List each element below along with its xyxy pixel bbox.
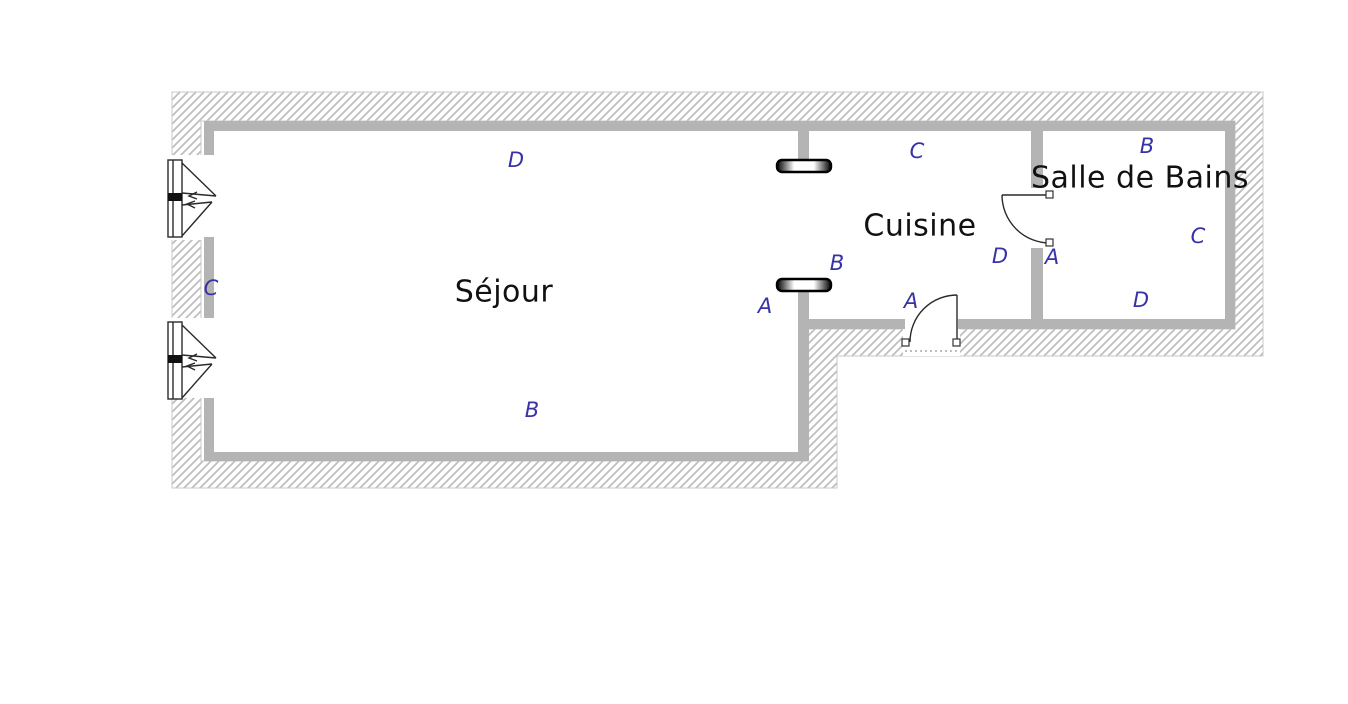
room-label-cuisine: Cuisine — [863, 209, 976, 244]
wall-marker-sejour-d: D — [508, 148, 524, 172]
wall-west-stub-bottom — [204, 398, 214, 461]
wall-cuisine-bains-partition-bottom — [1031, 248, 1043, 329]
wall-marker-salle_de_bains-a: A — [1045, 245, 1059, 269]
wall-sejour-south — [204, 452, 808, 461]
exterior-wall-hatch — [172, 92, 1263, 488]
lintel-bar-top — [777, 160, 831, 172]
wall-marker-salle_de_bains-b: B — [1140, 134, 1154, 158]
wall-cuisine-south-left — [808, 319, 905, 329]
lintel-bar-bottom — [777, 279, 831, 291]
wall-marker-cuisine-d: D — [992, 244, 1008, 268]
wall-north — [204, 121, 1235, 131]
wall-sejour-cuisine-bottom — [798, 290, 809, 461]
wall-sejour-cuisine-top — [798, 131, 809, 160]
wall-marker-sejour-b: B — [525, 398, 539, 422]
wall-marker-sejour-c: C — [204, 276, 219, 300]
wall-cuisine-bains-south — [958, 319, 1235, 329]
bathroom-door-icon — [1002, 191, 1053, 246]
wall-west-stub-top — [204, 121, 214, 155]
wall-east — [1225, 121, 1235, 329]
wall-marker-salle_de_bains-d: D — [1133, 288, 1149, 312]
floor-plan-drawing — [0, 0, 1348, 704]
wall-marker-cuisine-a: A — [904, 289, 918, 313]
wall-marker-salle_de_bains-c: C — [1191, 224, 1206, 248]
room-label-sejour: Séjour — [455, 275, 554, 310]
wall-marker-cuisine-c: C — [910, 139, 925, 163]
room-label-salle_de_bains: Salle de Bains — [1031, 161, 1249, 196]
wall-marker-sejour-a: A — [758, 294, 772, 318]
wall-marker-cuisine-b: B — [830, 251, 844, 275]
floor-plan-canvas: SéjourCuisineSalle de BainsDCBABCADABCD — [0, 0, 1348, 704]
